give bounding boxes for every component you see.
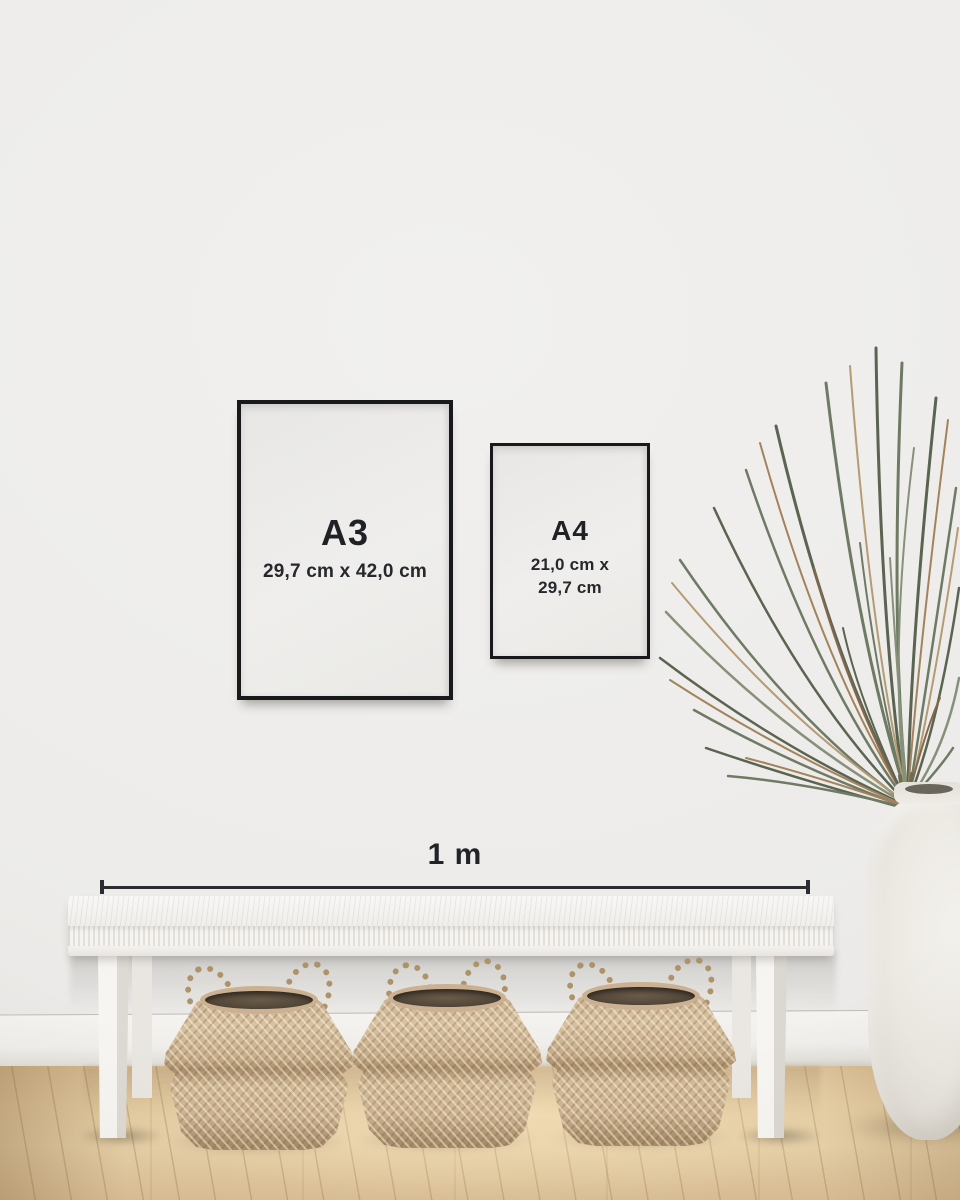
basket-opening bbox=[582, 982, 700, 1010]
palm-fronds bbox=[660, 348, 959, 807]
scale-bar: 1 m bbox=[100, 840, 810, 898]
bench-leg-front-left bbox=[98, 954, 129, 1138]
palm-plant bbox=[618, 328, 960, 828]
scale-label: 1 m bbox=[100, 840, 810, 870]
ceramic-vase bbox=[868, 794, 960, 1140]
scale-line bbox=[100, 880, 810, 894]
frame-a3-size-label: A3 bbox=[263, 515, 427, 551]
scale-endcap-right bbox=[806, 880, 810, 894]
basket-body bbox=[546, 994, 736, 1146]
basket-opening bbox=[200, 986, 318, 1014]
frame-a3-dimensions-line: 29,7 cm x 42,0 cm bbox=[263, 560, 427, 585]
frame-a3-content: A3 29,7 cm x 42,0 cm bbox=[263, 515, 427, 585]
frame-a3-dimensions: 29,7 cm x 42,0 cm bbox=[263, 560, 427, 585]
seagrass-basket-1 bbox=[164, 962, 354, 1156]
frame-a4-dimensions-line1: 21,0 cm x bbox=[531, 554, 609, 576]
frame-a4-dimensions: 21,0 cm x 29,7 cm bbox=[531, 554, 609, 598]
basket-body bbox=[164, 998, 354, 1150]
frame-a4-content: A4 21,0 cm x 29,7 cm bbox=[531, 517, 609, 598]
bench-leg-back-left bbox=[132, 950, 152, 1098]
bench-leg-front-right bbox=[756, 954, 787, 1138]
basket-body bbox=[352, 996, 542, 1148]
basket-opening bbox=[388, 984, 506, 1012]
bench-seat-weave-top bbox=[68, 896, 834, 926]
bench-seat-rail bbox=[68, 946, 834, 956]
vase-mouth bbox=[905, 784, 953, 794]
scale-line-bar bbox=[100, 886, 810, 889]
bench-seat-corded-front bbox=[68, 926, 834, 946]
frame-a4-dimensions-line2: 29,7 cm bbox=[531, 577, 609, 599]
frame-a4-size-label: A4 bbox=[531, 517, 609, 545]
seagrass-basket-3 bbox=[546, 958, 736, 1152]
room-scene: A3 29,7 cm x 42,0 cm A4 21,0 cm x 29,7 c… bbox=[0, 0, 960, 1200]
scale-endcap-left bbox=[100, 880, 104, 894]
bench-seat bbox=[68, 896, 834, 956]
frame-a3: A3 29,7 cm x 42,0 cm bbox=[237, 400, 453, 700]
seagrass-basket-2 bbox=[352, 960, 542, 1154]
